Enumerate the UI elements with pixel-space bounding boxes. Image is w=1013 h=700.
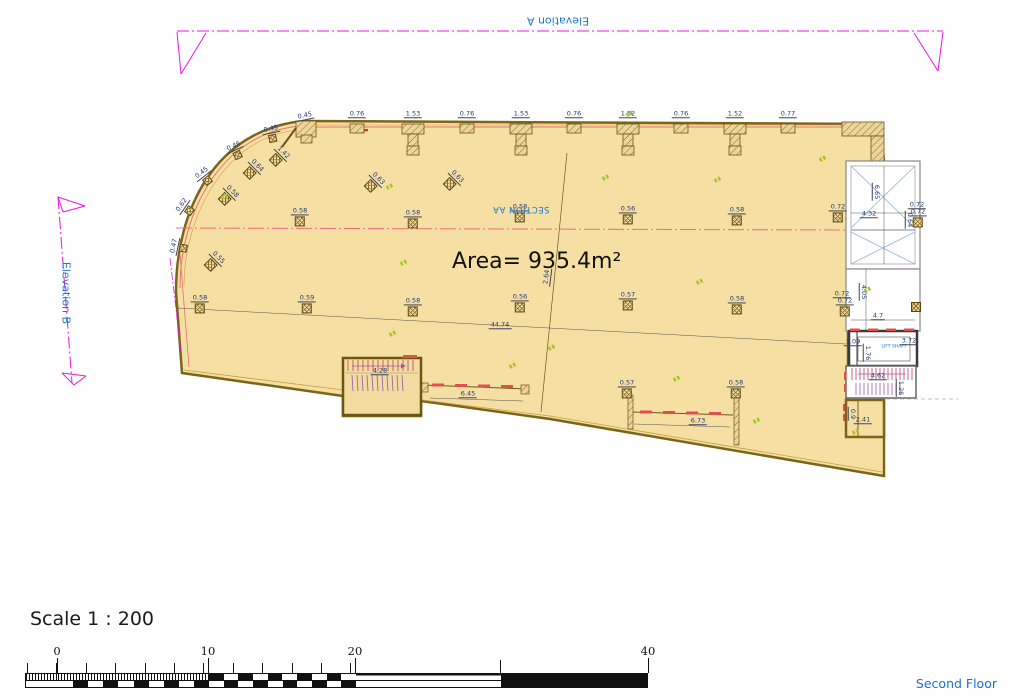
drawing-sheet: 0.580.580.580.560.580.720.580.590.580.56… (0, 0, 1013, 700)
floor-name-label: Second Floor (916, 676, 997, 691)
section-aa-label: SECTION AA (492, 204, 549, 214)
elevation-b-label: Elevation B (60, 262, 73, 324)
scale-title: Scale 1 : 200 (30, 608, 154, 630)
floorplan-geometry (0, 0, 1013, 700)
area-label: Area= 935.4m² (452, 249, 621, 274)
central-stairs (343, 355, 421, 415)
lift-shaft-label: LIFT SHAFT (881, 344, 907, 349)
elevation-a-marker (177, 31, 943, 74)
service-block (843, 161, 958, 437)
elevation-a-label: Elevation A (527, 15, 589, 28)
floor-outline (170, 121, 884, 476)
